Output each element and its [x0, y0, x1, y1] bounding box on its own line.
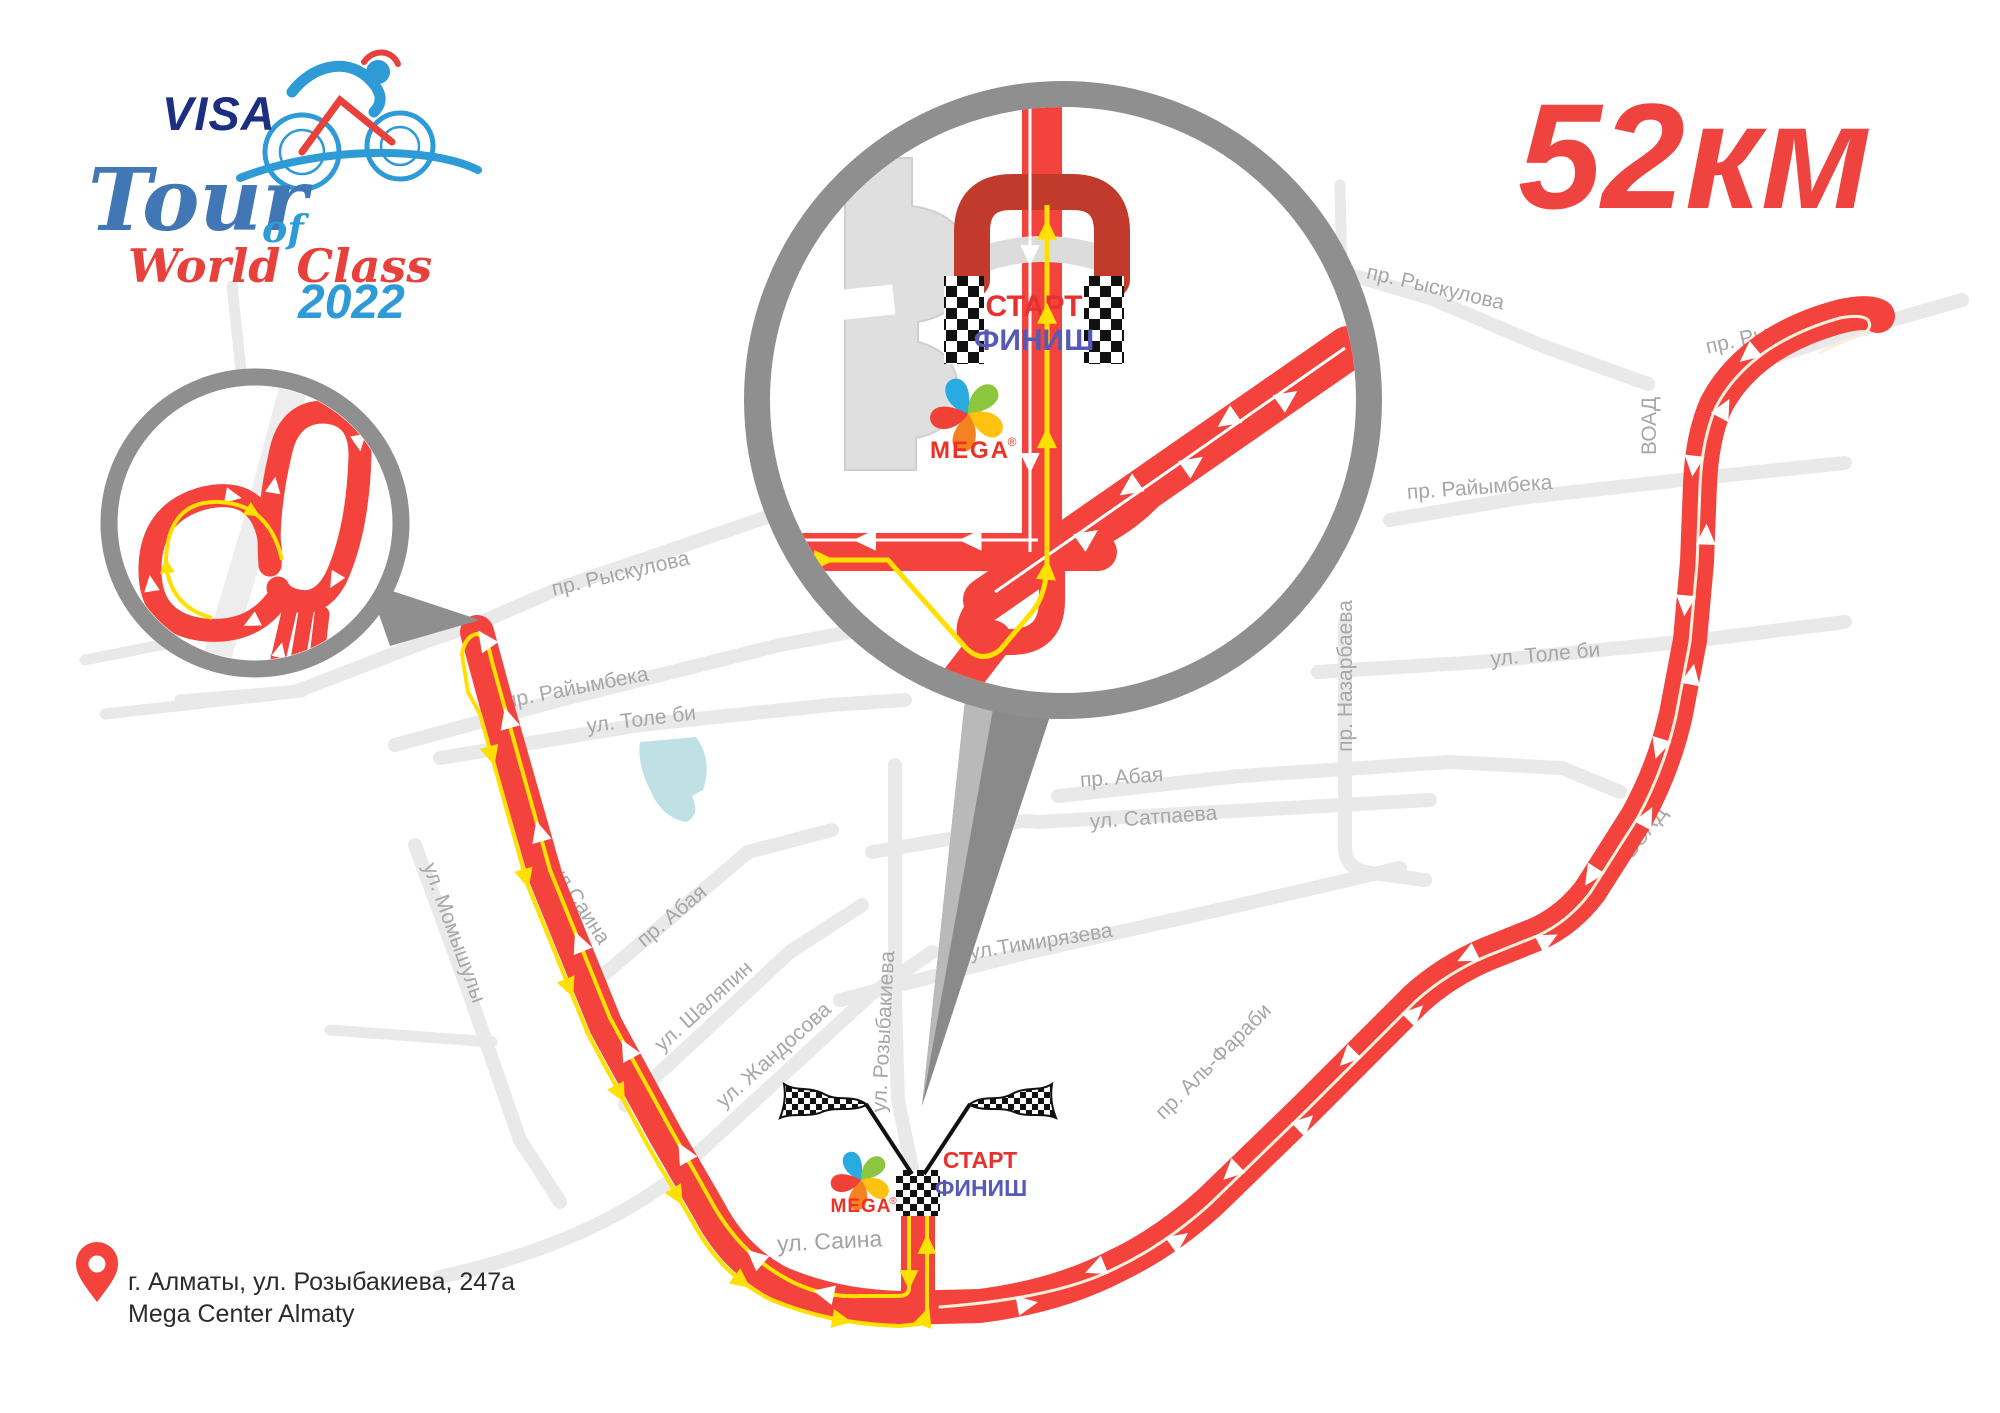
mega-label-map: MEGA [831, 1196, 892, 1217]
address-block: г. Алматы, ул. Розыбакиева, 247а Mega Ce… [76, 1242, 515, 1328]
street-connector-left [330, 1030, 492, 1042]
street-label-alfarabi: пр. Аль-Фараби [1151, 999, 1276, 1124]
mega-logo-map: MEGA ® [829, 1151, 897, 1217]
gantry-shadow [975, 249, 1112, 262]
mega-label-inset: MEGA [930, 437, 1010, 464]
street-label-momyshuly: ул. Момышулы [418, 860, 490, 1006]
mega-reg-inset: ® [1008, 435, 1017, 449]
big-inset: СТАРТ ФИНИШ MEGA ® [757, 94, 1369, 714]
big-inset-pointer [922, 672, 1056, 1106]
address-line-2: Mega Center Almaty [128, 1300, 355, 1328]
finish-label-map: ФИНИШ [935, 1175, 1027, 1201]
pond [639, 737, 706, 822]
mega-reg-map: ® [889, 1196, 897, 1207]
small-inset [109, 377, 480, 708]
cyclist-front-wheel-inner [381, 127, 419, 165]
logo-year-text: 2022 [297, 276, 405, 329]
map-canvas: пр. Рыскулова пр. Рыскулова пр. Рыскулов… [0, 0, 2000, 1413]
street-abaya-west [595, 830, 832, 982]
street-label-nazarbaeva: пр. Назарбаева [1334, 600, 1357, 752]
street-label-tolebi-west: ул. Толе би [585, 701, 697, 737]
street-label-voad-vertical: ВОАД [1638, 397, 1661, 455]
start-label-map: СТАРТ [943, 1147, 1017, 1173]
street-label-abaya-west: пр. Абая [633, 880, 712, 951]
start-finish-cluster: СТАРТ ФИНИШ MEGA ® [780, 1084, 1056, 1217]
cyclist-head [366, 60, 390, 84]
distance-total: 52км [1518, 72, 1872, 240]
route-map-poster: пр. Рыскулова пр. Рыскулова пр. Рыскулов… [0, 0, 2000, 1413]
street-label-tolebi-east: ул. Толе би [1490, 638, 1601, 670]
street-label-ryskulova-west: пр. Рыскулова [549, 547, 691, 601]
finish-label-inset: ФИНИШ [974, 324, 1095, 357]
address-line-1: г. Алматы, ул. Розыбакиева, 247а [128, 1268, 515, 1296]
start-finish-checker-mat [896, 1170, 940, 1216]
street-label-raiymbeka-west: пр. Райымбека [503, 662, 651, 712]
street-saina-bottom-gray [440, 1163, 692, 1277]
street-timiryazeva [840, 868, 1400, 1000]
checkered-flag-right [970, 1084, 1056, 1118]
street-label-saina-bottom: ул. Саина [776, 1225, 883, 1256]
event-logo: VISA Tour of World Class 2022 [88, 52, 478, 329]
checkered-flag-left [780, 1084, 866, 1118]
start-label-inset: СТАРТ [986, 290, 1083, 323]
location-pin-icon [76, 1242, 118, 1302]
street-label-satpaeva: ул. Сатпаева [1089, 802, 1218, 834]
street-label-timiryazeva: ул.Тимирязева [968, 919, 1115, 964]
visa-wordmark: VISA [162, 87, 276, 140]
cyclist-front-wheel [367, 113, 433, 179]
